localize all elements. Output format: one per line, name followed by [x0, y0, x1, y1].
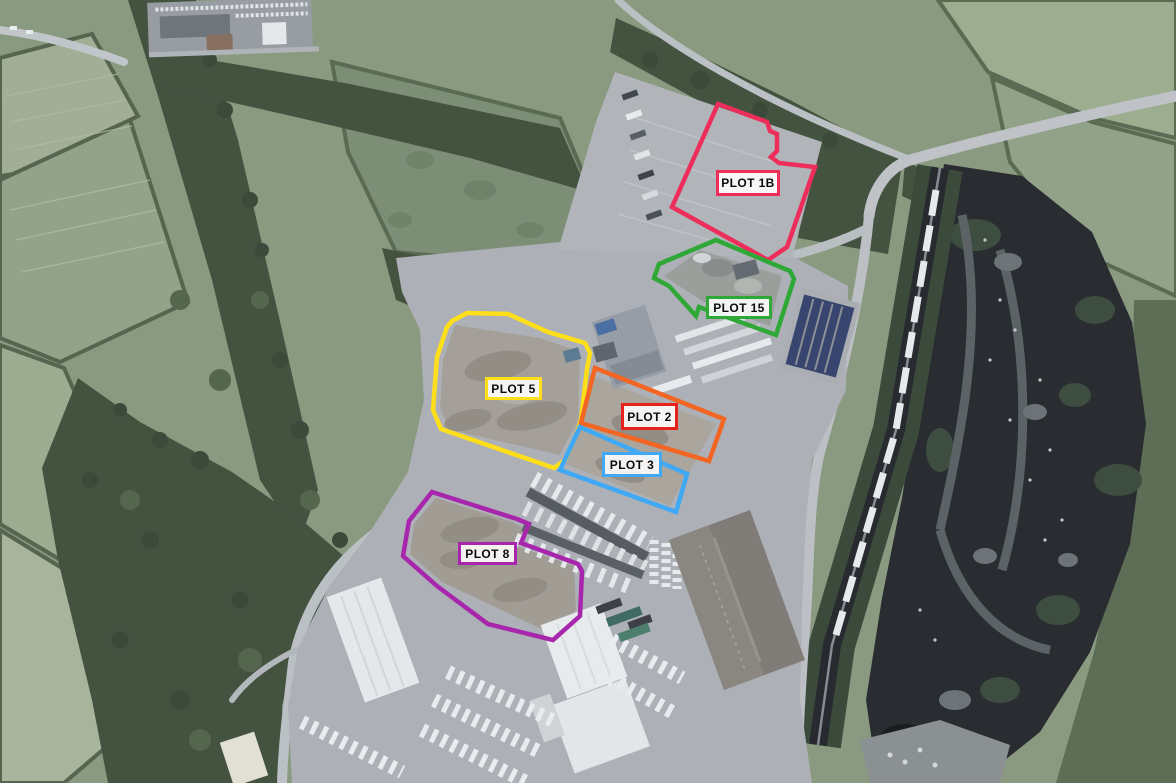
aerial-site-map: PLOT 1BPLOT 15PLOT 5PLOT 2PLOT 3PLOT 8	[0, 0, 1176, 783]
plot-outline-plot-3	[560, 427, 687, 512]
plot-outline-plot-8	[403, 492, 582, 640]
plot-boundaries-overlay	[0, 0, 1176, 783]
plot-outline-plot-2	[581, 368, 724, 461]
plot-outline-plot-5	[433, 313, 590, 468]
plot-outline-plot-1b	[672, 104, 815, 260]
